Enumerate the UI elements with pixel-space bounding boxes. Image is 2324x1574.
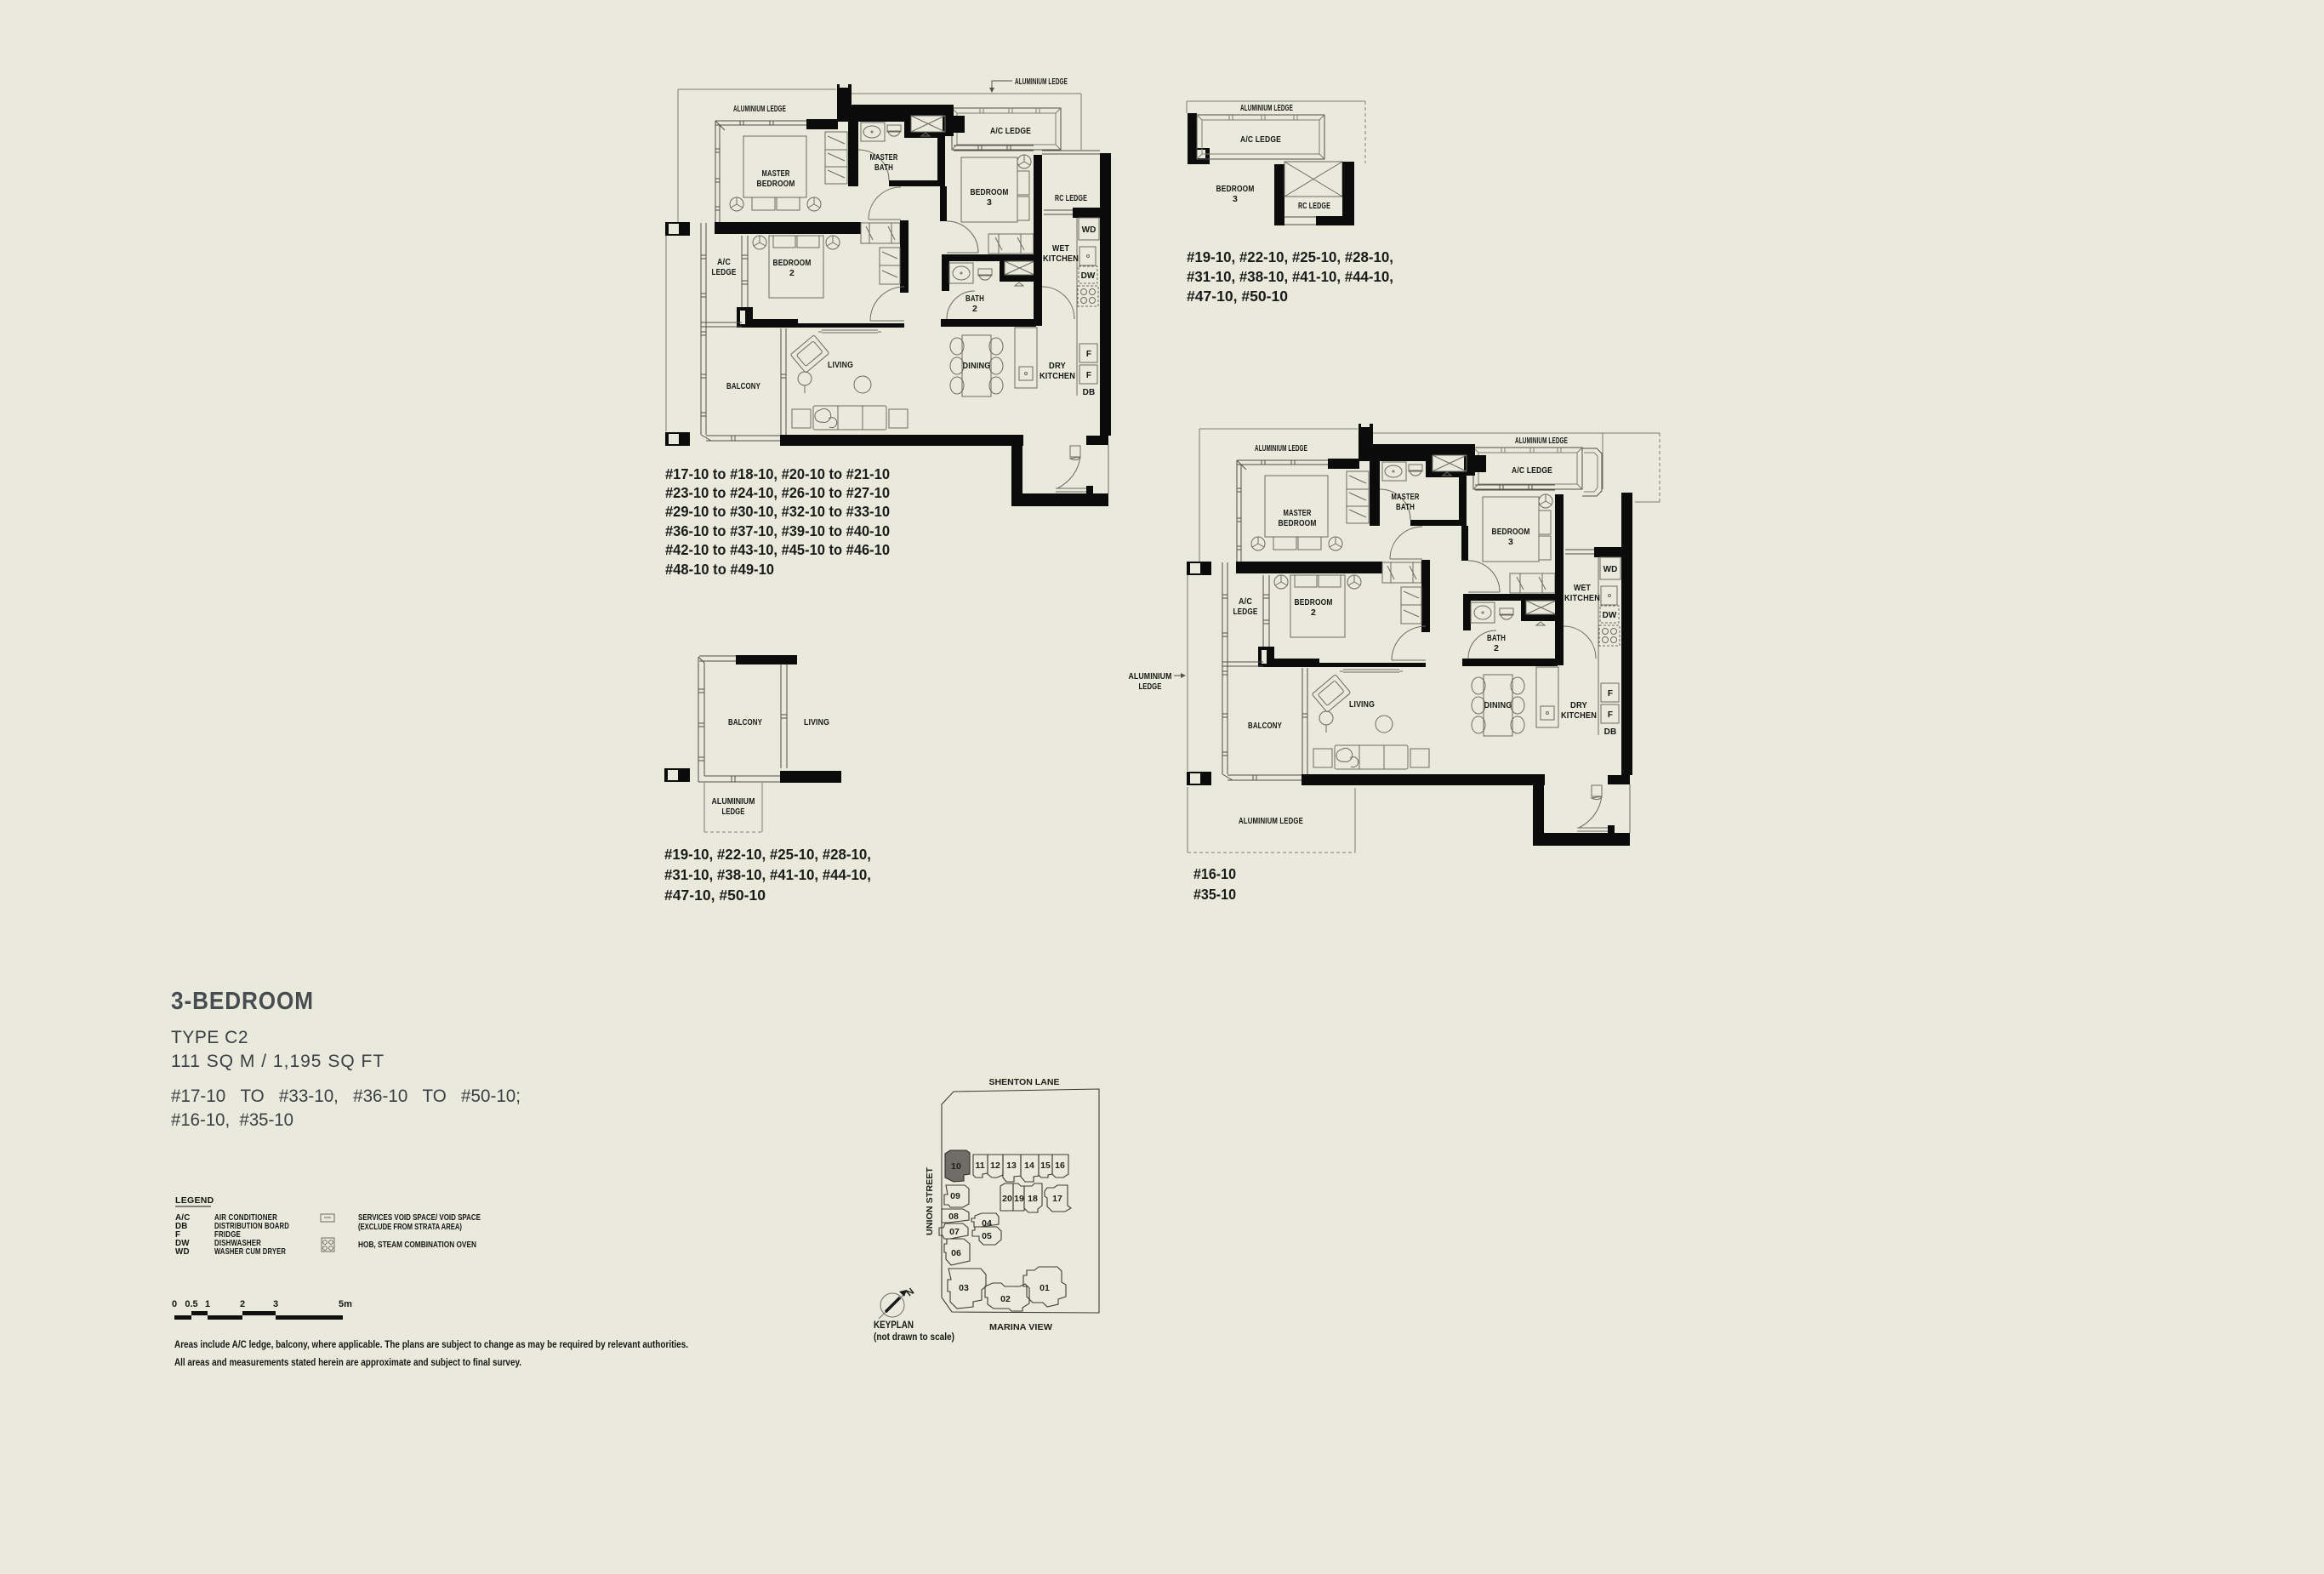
svg-text:05: 05 xyxy=(982,1231,992,1241)
svg-text:#48-10 to #49-10: #48-10 to #49-10 xyxy=(665,561,774,578)
svg-text:LIVING: LIVING xyxy=(804,717,829,727)
svg-text:KEYPLAN: KEYPLAN xyxy=(874,1319,914,1331)
svg-text:2: 2 xyxy=(240,1299,245,1309)
svg-text:17: 17 xyxy=(1052,1194,1062,1204)
svg-text:SHENTON LANE: SHENTON LANE xyxy=(989,1077,1060,1087)
svg-text:ALUMINIUM LEDGE: ALUMINIUM LEDGE xyxy=(1255,443,1307,453)
svg-text:111 SQ M / 1,195 SQ FT: 111 SQ M / 1,195 SQ FT xyxy=(171,1052,384,1071)
svg-text:07: 07 xyxy=(949,1227,960,1237)
svg-text:ALUMINIUM LEDGE: ALUMINIUM LEDGE xyxy=(1515,436,1568,446)
svg-text:#16-10: #16-10 xyxy=(1193,865,1236,882)
svg-text:UNION STREET: UNION STREET xyxy=(925,1166,935,1235)
svg-text:LEDGE: LEDGE xyxy=(722,807,745,817)
svg-text:0: 0 xyxy=(172,1299,177,1309)
svg-text:#47-10, #50-10: #47-10, #50-10 xyxy=(664,887,766,904)
svg-text:13: 13 xyxy=(1006,1161,1017,1171)
svg-text:19: 19 xyxy=(1014,1194,1024,1204)
svg-text:RC LEDGE: RC LEDGE xyxy=(1055,193,1087,203)
svg-text:20: 20 xyxy=(1002,1194,1012,1204)
svg-text:BALCONY: BALCONY xyxy=(728,717,762,727)
svg-text:06: 06 xyxy=(951,1248,961,1258)
svg-text:5m: 5m xyxy=(339,1299,352,1309)
svg-text:ALUMINIUM LEDGE: ALUMINIUM LEDGE xyxy=(1015,77,1068,87)
svg-text:#47-10, #50-10: #47-10, #50-10 xyxy=(1187,288,1288,305)
svg-text:#17-10 to #18-10, #20-10 to #2: #17-10 to #18-10, #20-10 to #21-10 xyxy=(665,465,890,482)
svg-text:SERVICES VOID SPACE/ VOID SPAC: SERVICES VOID SPACE/ VOID SPACE xyxy=(358,1213,481,1223)
svg-text:#31-10, #38-10, #41-10, #44-10: #31-10, #38-10, #41-10, #44-10, xyxy=(1187,268,1393,285)
svg-text:18: 18 xyxy=(1028,1194,1038,1204)
svg-text:HOB, STEAM COMBINATION OVEN: HOB, STEAM COMBINATION OVEN xyxy=(358,1240,476,1250)
svg-text:Areas include A/C ledge, balco: Areas include A/C ledge, balcony, where … xyxy=(174,1340,688,1350)
svg-text:#29-10 to #30-10, #32-10 to #3: #29-10 to #30-10, #32-10 to #33-10 xyxy=(665,503,890,520)
svg-text:LEDGE: LEDGE xyxy=(1139,682,1162,692)
svg-text:A/C LEDGE: A/C LEDGE xyxy=(1240,134,1281,145)
svg-text:02: 02 xyxy=(1000,1294,1011,1304)
svg-text:RC LEDGE: RC LEDGE xyxy=(1298,201,1330,211)
svg-text:0.5: 0.5 xyxy=(185,1299,197,1309)
svg-text:08: 08 xyxy=(948,1212,959,1222)
svg-text:#31-10, #38-10, #41-10, #44-10: #31-10, #38-10, #41-10, #44-10, xyxy=(664,866,871,883)
svg-text:#17-10 TO #33-10, #36-10: #17-10 TO #33-10, #36-10 TO #50-10; xyxy=(171,1086,521,1106)
svg-text:LEGEND: LEGEND xyxy=(175,1195,214,1206)
svg-text:#35-10: #35-10 xyxy=(1193,886,1236,903)
svg-text:10: 10 xyxy=(951,1161,961,1172)
svg-text:TYPE C2: TYPE C2 xyxy=(171,1028,248,1047)
svg-text:15: 15 xyxy=(1040,1161,1051,1171)
svg-text:All areas and measurements sta: All areas and measurements stated herein… xyxy=(174,1358,521,1368)
svg-text:WD: WD xyxy=(175,1247,190,1257)
svg-text:ALUMINIUM LEDGE: ALUMINIUM LEDGE xyxy=(733,104,786,114)
svg-text:#23-10 to #24-10, #26-10 to #2: #23-10 to #24-10, #26-10 to #27-10 xyxy=(665,484,890,501)
svg-text:BEDROOM: BEDROOM xyxy=(1216,184,1255,194)
svg-text:3: 3 xyxy=(1233,194,1238,204)
svg-text:16: 16 xyxy=(1055,1161,1065,1171)
svg-text:(EXCLUDE FROM STRATA AREA): (EXCLUDE FROM STRATA AREA) xyxy=(358,1223,462,1232)
svg-text:09: 09 xyxy=(950,1191,960,1201)
svg-text:3: 3 xyxy=(273,1299,278,1309)
svg-text:(not drawn to scale): (not drawn to scale) xyxy=(874,1331,954,1343)
svg-text:WASHER CUM DRYER: WASHER CUM DRYER xyxy=(214,1247,286,1257)
svg-text:14: 14 xyxy=(1024,1161,1034,1171)
svg-text:ALUMINIUM LEDGE: ALUMINIUM LEDGE xyxy=(1240,103,1293,113)
svg-text:03: 03 xyxy=(959,1283,969,1293)
svg-text:12: 12 xyxy=(990,1161,1000,1171)
svg-text:ALUMINIUM: ALUMINIUM xyxy=(712,797,755,807)
svg-text:#36-10 to #37-10, #39-10 to #4: #36-10 to #37-10, #39-10 to #40-10 xyxy=(665,522,890,539)
svg-text:11: 11 xyxy=(975,1161,984,1171)
svg-text:01: 01 xyxy=(1040,1283,1050,1293)
svg-text:MARINA VIEW: MARINA VIEW xyxy=(989,1322,1052,1332)
svg-text:#19-10, #22-10, #25-10, #28-10: #19-10, #22-10, #25-10, #28-10, xyxy=(1187,248,1393,265)
svg-text:1: 1 xyxy=(205,1299,210,1309)
svg-text:#16-10, #35-10: #16-10, #35-10 xyxy=(171,1110,293,1130)
svg-text:#42-10 to #43-10, #45-10 to #4: #42-10 to #43-10, #45-10 to #46-10 xyxy=(665,541,890,558)
svg-text:#19-10, #22-10, #25-10, #28-10: #19-10, #22-10, #25-10, #28-10, xyxy=(664,846,871,863)
svg-text:ALUMINIUM LEDGE: ALUMINIUM LEDGE xyxy=(1239,816,1303,826)
svg-text:3-BEDROOM: 3-BEDROOM xyxy=(171,988,314,1015)
svg-text:ALUMINIUM: ALUMINIUM xyxy=(1129,672,1172,681)
